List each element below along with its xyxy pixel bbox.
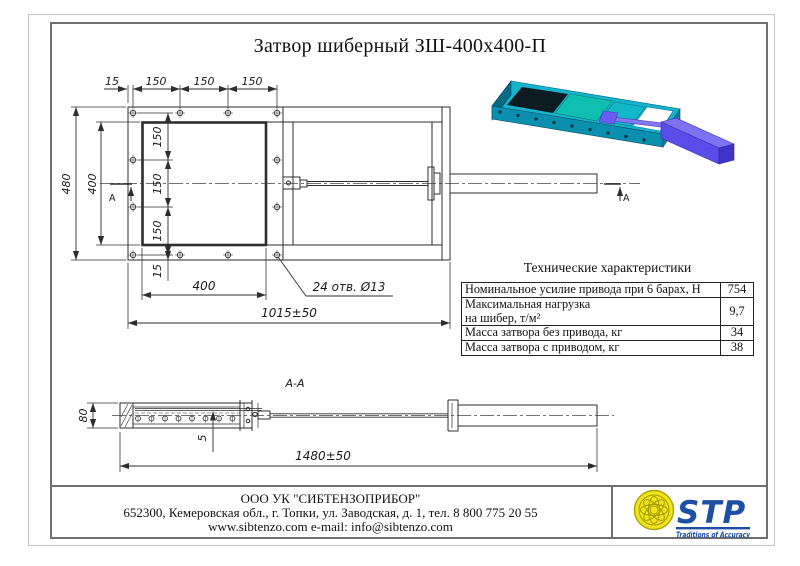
- company-name: ООО УК "СИБТЕНЗОПРИБОР": [50, 492, 611, 506]
- dim-opening-400: 400: [193, 279, 216, 293]
- dim-section-80: 80: [77, 409, 90, 423]
- spec-row-value: 9,7: [721, 297, 754, 326]
- section-letter-right: А: [623, 193, 630, 204]
- spec-row-label: Масса затвора без привода, кг: [462, 326, 721, 341]
- dim-section-1480: 1480±50: [295, 449, 351, 463]
- section-view-label: А-А: [284, 377, 304, 390]
- dim-section-5: 5: [196, 435, 209, 442]
- section-view: А-А: [77, 377, 614, 472]
- stp-logo: STP Traditions of Accuracy: [613, 487, 768, 539]
- company-info: ООО УК "СИБТЕНЗОПРИБОР" 652300, Кемеровс…: [50, 492, 611, 534]
- dim-height-400: 400: [86, 174, 99, 195]
- section-letter-left: А: [109, 193, 116, 204]
- dim-chain-150c: 150: [151, 221, 164, 242]
- table-row: Масса затвора с приводом, кг 38: [462, 341, 754, 356]
- spec-table-title: Технические характеристики: [461, 260, 754, 276]
- spec-row-label-line1: Максимальная нагрузка: [465, 298, 717, 312]
- table-row: Масса затвора без привода, кг 34: [462, 326, 754, 341]
- render-3d: [492, 81, 734, 164]
- spec-row-value: 34: [721, 326, 754, 341]
- spec-row-label: Номинальное усилие привода при 6 барах, …: [462, 283, 721, 298]
- spec-row-value: 38: [721, 341, 754, 356]
- stp-emblem-icon: [635, 491, 674, 530]
- company-contacts: www.sibtenzo.com e-mail: info@sibtenzo.c…: [50, 520, 611, 534]
- spec-section: Технические характеристики Номинальное у…: [461, 260, 754, 356]
- table-row: Номинальное усилие привода при 6 барах, …: [462, 283, 754, 298]
- dim-chain-150b: 150: [151, 174, 164, 195]
- title-block: ООО УК "СИБТЕНЗОПРИБОР" 652300, Кемеровс…: [50, 485, 768, 539]
- company-address: 652300, Кемеровская обл., г. Топки, ул. …: [50, 506, 611, 520]
- stp-logo-tagline: Traditions of Accuracy: [676, 531, 751, 540]
- dim-total-1015: 1015±50: [261, 306, 317, 320]
- spec-table: Номинальное усилие привода при 6 барах, …: [461, 282, 754, 356]
- spec-row-label-line2: на шибер, т/м²: [465, 312, 717, 326]
- dim-top-15: 15: [105, 75, 119, 88]
- table-row: Максимальная нагрузка на шибер, т/м² 9,7: [462, 297, 754, 326]
- dim-top-150c: 150: [242, 75, 263, 88]
- stp-logo-graphic: STP Traditions of Accuracy: [613, 487, 768, 539]
- spec-row-value: 754: [721, 283, 754, 298]
- drawing-sheet: { "page": { "title": "Затвор шиберный ЗШ…: [0, 0, 800, 566]
- dim-top-150b: 150: [194, 75, 215, 88]
- spec-row-label: Максимальная нагрузка на шибер, т/м²: [462, 297, 721, 326]
- dim-chain-150a: 150: [151, 127, 164, 148]
- dim-offset-15: 15: [151, 264, 164, 278]
- dim-top-150a: 150: [146, 75, 167, 88]
- section-marker-right: [604, 184, 621, 201]
- spec-row-label: Масса затвора с приводом, кг: [462, 341, 721, 356]
- holes-callout: 24 отв. Ø13: [313, 280, 386, 294]
- stp-logo-text: STP: [677, 495, 746, 531]
- dim-height-480: 480: [60, 174, 73, 195]
- stp-logo-underline: [676, 527, 750, 529]
